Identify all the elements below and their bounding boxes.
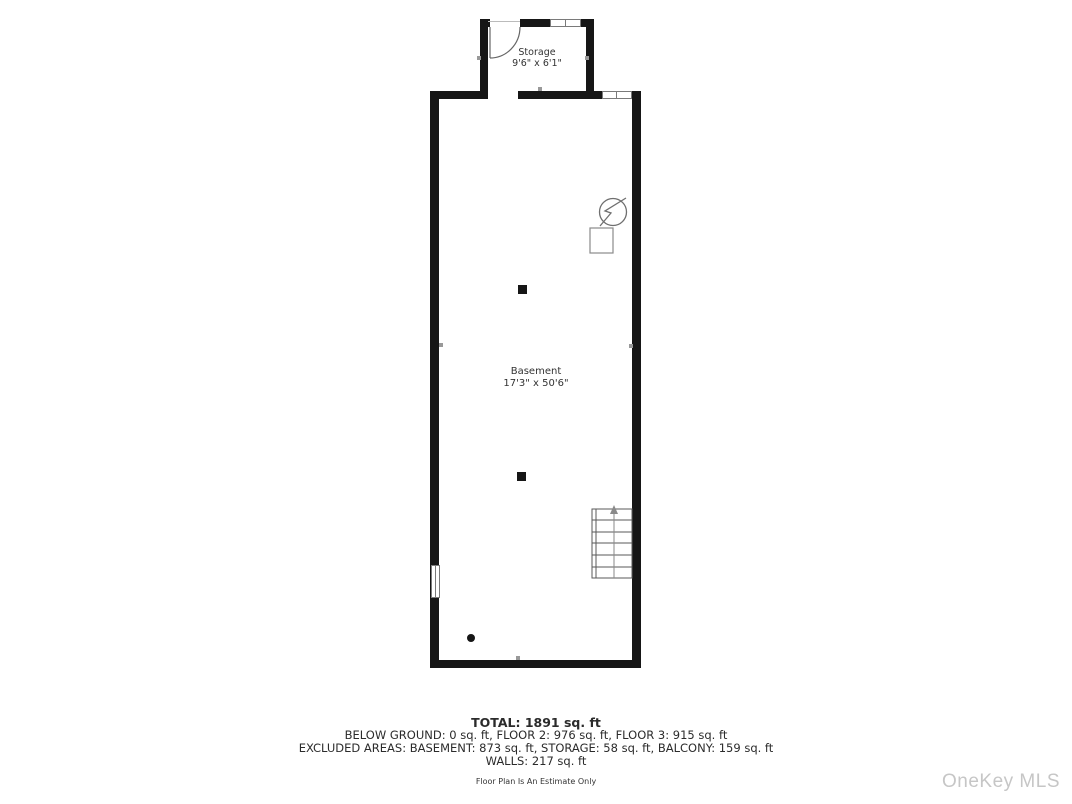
- window-glass-lines: [436, 20, 617, 597]
- storage-room-dimensions: 9'6" x 6'1": [478, 58, 596, 69]
- basement-room-name: Basement: [439, 366, 633, 378]
- electrical-panel-icon: [600, 198, 627, 226]
- staircase-icon: [592, 505, 632, 578]
- storage-room-label: Storage 9'6" x 6'1": [478, 47, 596, 69]
- summary-disclaimer: Floor Plan Is An Estimate Only: [0, 777, 1072, 786]
- floor-plan-page: Storage 9'6" x 6'1" Basement 17'3" x 50'…: [0, 0, 1072, 804]
- storage-room-name: Storage: [478, 47, 596, 58]
- basement-room-dimensions: 17'3" x 50'6": [439, 378, 633, 390]
- plan-symbols-overlay: [0, 0, 1072, 804]
- utility-box-icon: [590, 228, 613, 253]
- drain-dot-icon: [467, 634, 475, 642]
- basement-room-label: Basement 17'3" x 50'6": [439, 366, 633, 390]
- summary-walls: WALLS: 217 sq. ft: [0, 755, 1072, 768]
- onekey-mls-watermark: OneKey MLS: [942, 771, 1060, 793]
- area-summary: TOTAL: 1891 sq. ft BELOW GROUND: 0 sq. f…: [0, 716, 1072, 786]
